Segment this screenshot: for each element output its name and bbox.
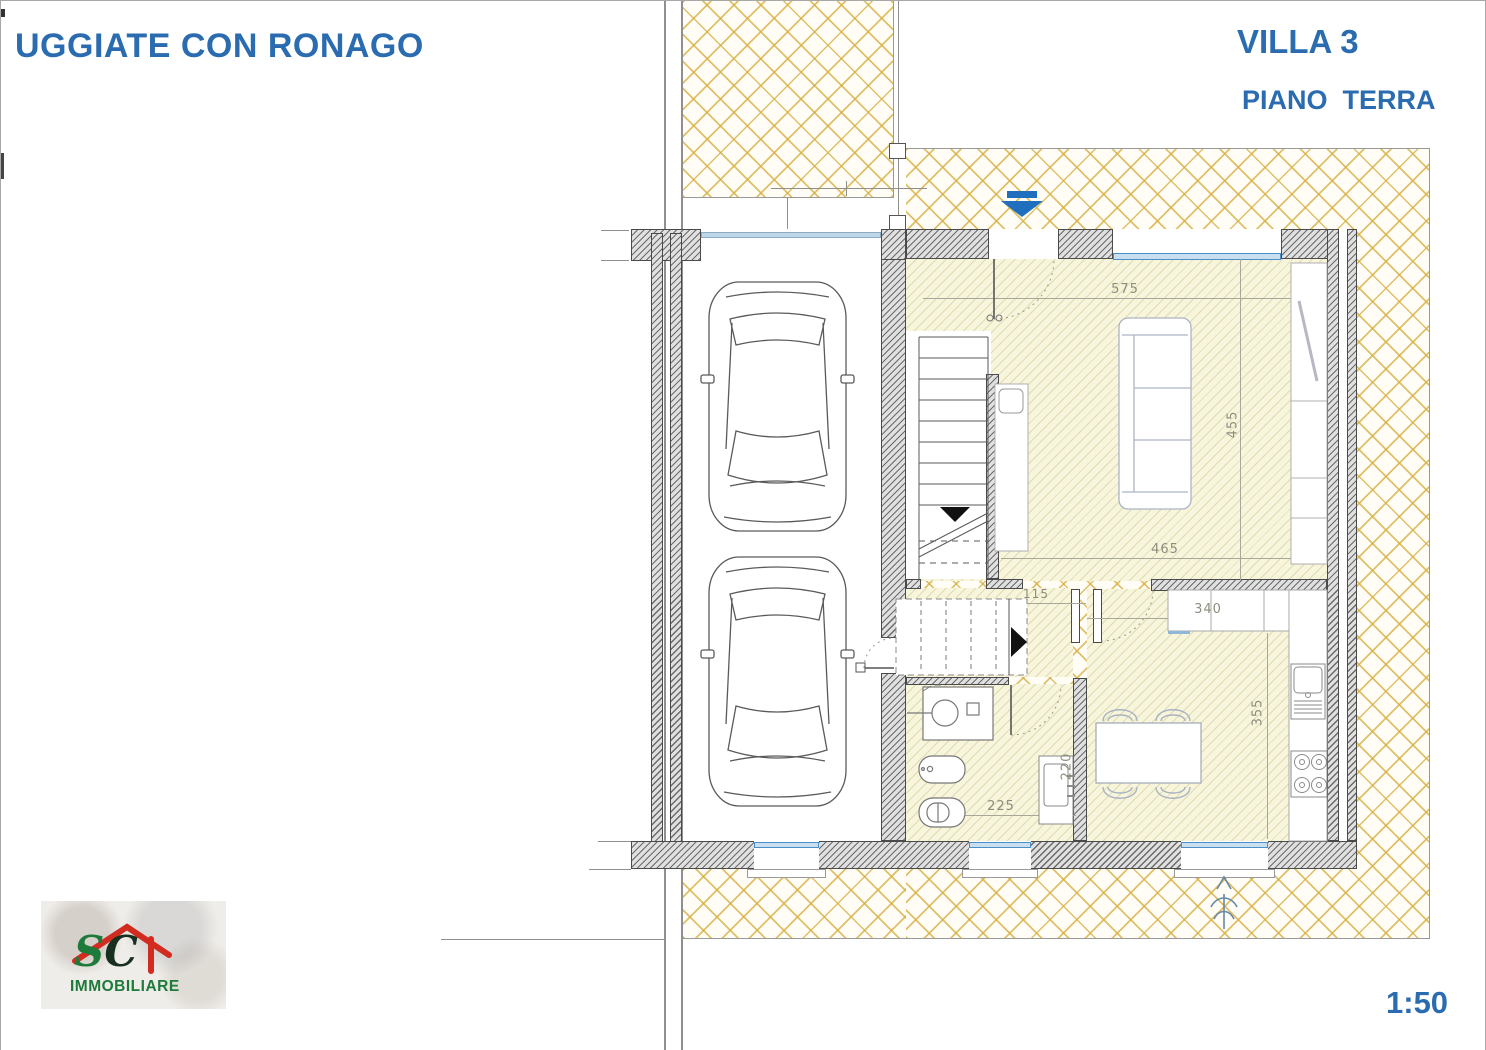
sofa-icon [1119,318,1191,509]
car-icon [701,282,854,531]
toilet-icon [919,798,965,827]
dim-label-340: 340 [1184,602,1232,617]
stove-icon [1291,751,1327,797]
dim-label-225: 225 [979,799,1023,814]
bathroom-sink-icon [907,685,993,740]
floorplan-page: 575 455 465 115 340 355 220 225 UGGIATE … [0,0,1486,1050]
logo-initials: SC [74,931,138,973]
dim-label-220: 220 [1060,745,1075,789]
kitchen-door [1101,589,1153,641]
staircase [919,337,988,579]
chair-icon [1103,787,1137,798]
page-title: UGGIATE CON RONAGO [15,27,424,66]
tv-cabinet [1291,263,1327,564]
logo-initial-c: C [104,927,137,976]
stair-down-arrow-icon [940,507,970,522]
agency-logo: SC IMMOBILIARE [41,901,226,1009]
chair-icon [1156,787,1190,798]
bathroom-door [1011,685,1061,735]
dim-label-575: 575 [1101,282,1149,297]
plan-drawing-overlay [1,1,1486,1050]
logo-initial-s: S [74,927,104,976]
stair-lower-flight [896,599,1027,675]
dim-label-355: 355 [1251,691,1266,735]
kitchen-sink-icon [1291,664,1325,719]
dim-label-465: 465 [1141,542,1189,557]
logo-company-name: IMMOBILIARE [70,978,180,996]
entrance-door [987,259,1054,321]
scale-label: 1:50 [1386,985,1448,1021]
garden-marker-icon [1211,877,1237,929]
chair-icon [1103,710,1137,721]
sideboard [995,384,1028,551]
entrance-arrow-icon [1001,191,1043,217]
chair-icon [1156,710,1190,721]
villa-label: VILLA 3 [1237,23,1359,61]
floor-label: PIANO TERRA [1242,85,1436,116]
dining-table [1096,710,1201,799]
bidet-icon [919,756,965,783]
dim-label-115: 115 [1014,587,1058,601]
car-icon [701,557,854,806]
dim-label-455: 455 [1226,403,1241,447]
garage-hall-door [856,638,894,672]
